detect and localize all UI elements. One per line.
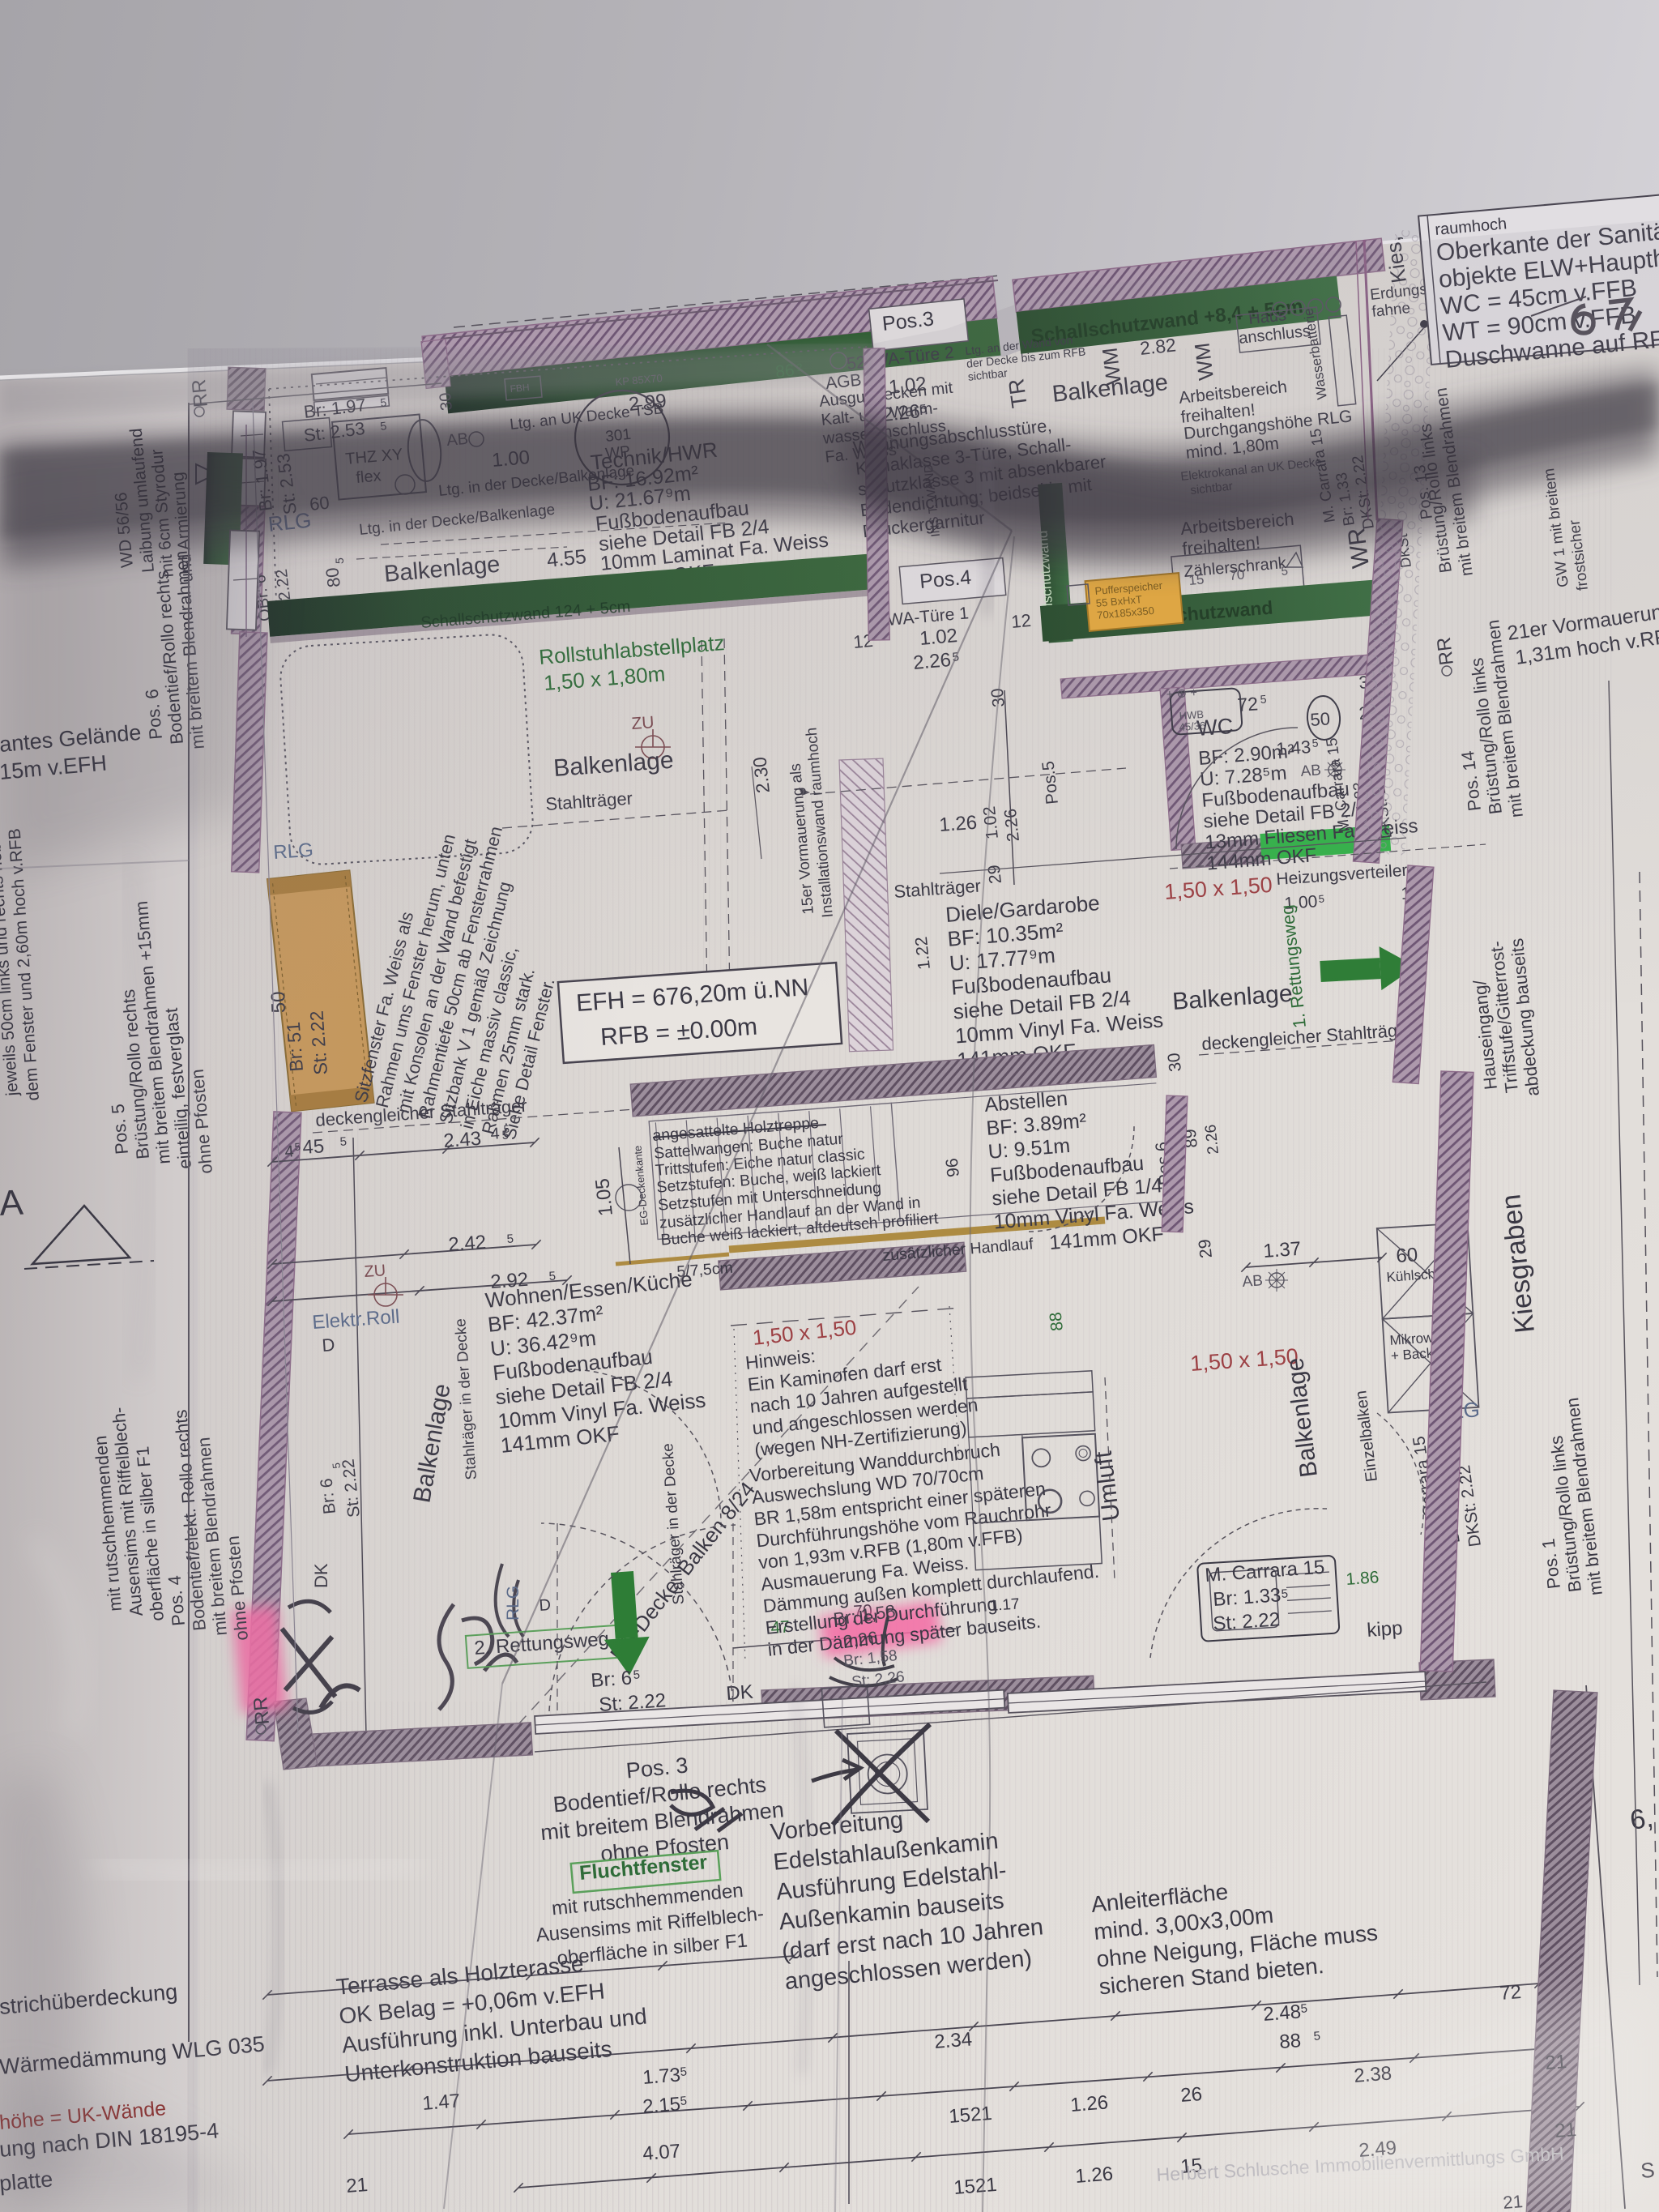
- svg-text:St: 2.22: St: 2.22: [1213, 1608, 1281, 1635]
- svg-text:2.34: 2.34: [933, 2028, 973, 2053]
- svg-text:1521: 1521: [953, 2174, 997, 2199]
- svg-text:2.15: 2.15: [642, 2093, 681, 2118]
- svg-text:1.26: 1.26: [1074, 2163, 1114, 2188]
- svg-text:88: 88: [1047, 1311, 1067, 1332]
- svg-text:4.07: 4.07: [642, 2140, 681, 2165]
- svg-text:1.26: 1.26: [1069, 2091, 1109, 2116]
- svg-text:kipp: kipp: [1367, 1617, 1404, 1642]
- svg-text:2.26: 2.26: [1202, 1124, 1222, 1155]
- svg-text:72: 72: [1499, 1981, 1522, 2005]
- svg-text:5: 5: [1281, 1586, 1289, 1601]
- svg-text:30: 30: [1165, 1052, 1185, 1073]
- svg-text:5: 5: [1313, 2029, 1321, 2043]
- svg-text:2.48: 2.48: [1262, 2001, 1302, 2026]
- svg-text:1.73: 1.73: [642, 2064, 681, 2089]
- svg-text:5: 5: [680, 2094, 688, 2108]
- svg-text:DK: DK: [726, 1681, 754, 1705]
- svg-text:A: A: [0, 1182, 24, 1223]
- svg-text:1.37: 1.37: [1263, 1238, 1302, 1262]
- svg-text:5: 5: [1300, 2001, 1308, 2016]
- svg-text:88: 88: [1278, 2030, 1302, 2053]
- svg-text:6,: 6,: [1628, 1802, 1655, 1836]
- svg-text:5: 5: [680, 2065, 688, 2079]
- svg-text:29: 29: [1196, 1238, 1216, 1259]
- svg-text:1.86: 1.86: [1346, 1568, 1380, 1589]
- svg-text:26: 26: [1179, 2083, 1203, 2107]
- svg-text:1521: 1521: [948, 2103, 992, 2128]
- svg-text:96: 96: [943, 1157, 963, 1178]
- svg-text:AB: AB: [1242, 1272, 1264, 1291]
